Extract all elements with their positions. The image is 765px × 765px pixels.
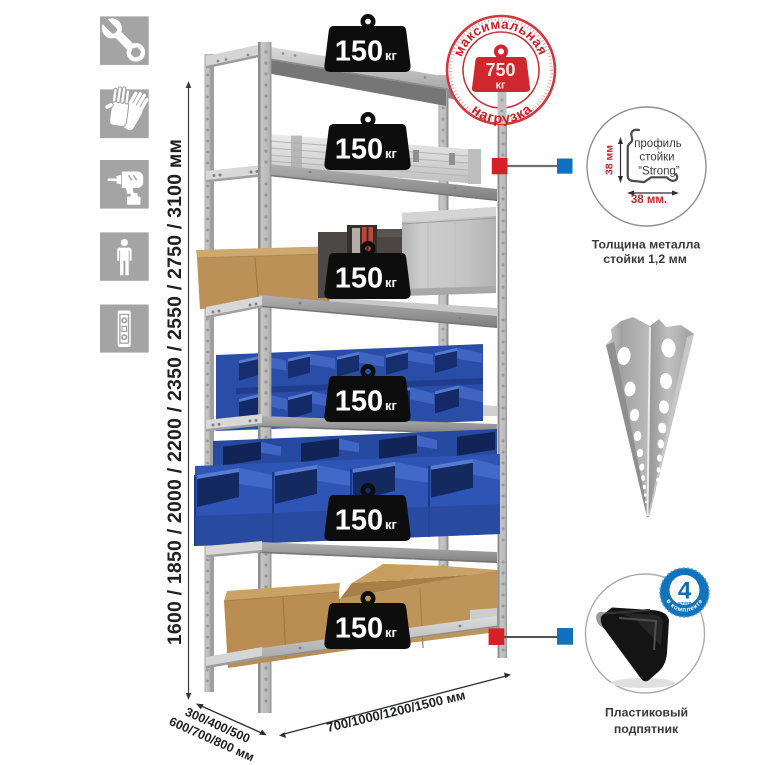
svg-text:профиль: профиль — [634, 138, 682, 150]
svg-text:150: 150 — [335, 36, 383, 68]
svg-text:кг: кг — [385, 48, 398, 63]
svg-text:кг: кг — [385, 517, 398, 532]
svg-text:“Strong”: “Strong” — [638, 166, 680, 178]
svg-text:150: 150 — [335, 134, 383, 166]
svg-text:750: 750 — [485, 60, 515, 80]
svg-text:Толщина металла: Толщина металла — [592, 238, 701, 252]
svg-text:стойки: стойки — [639, 152, 674, 164]
svg-text:1600 / 1850 / 2000 / 2200 / 23: 1600 / 1850 / 2000 / 2200 / 2350 / 2550 … — [164, 139, 186, 645]
svg-text:150: 150 — [335, 386, 383, 418]
svg-text:кг: кг — [495, 80, 506, 92]
svg-text:штуки: штуки — [678, 601, 692, 606]
svg-text:38 мм: 38 мм — [604, 145, 616, 175]
svg-text:кг: кг — [385, 398, 398, 413]
svg-text:кг: кг — [385, 146, 398, 161]
svg-text:кг: кг — [385, 275, 398, 290]
svg-text:кг: кг — [385, 625, 398, 640]
svg-text:150: 150 — [335, 613, 383, 645]
svg-text:150: 150 — [335, 505, 383, 537]
svg-text:подпятник: подпятник — [614, 722, 679, 736]
svg-text:150: 150 — [335, 263, 383, 295]
svg-text:стойки 1,2 мм: стойки 1,2 мм — [603, 252, 687, 266]
svg-text:Пластиковый: Пластиковый — [605, 706, 688, 720]
svg-text:38 мм.: 38 мм. — [631, 194, 667, 206]
